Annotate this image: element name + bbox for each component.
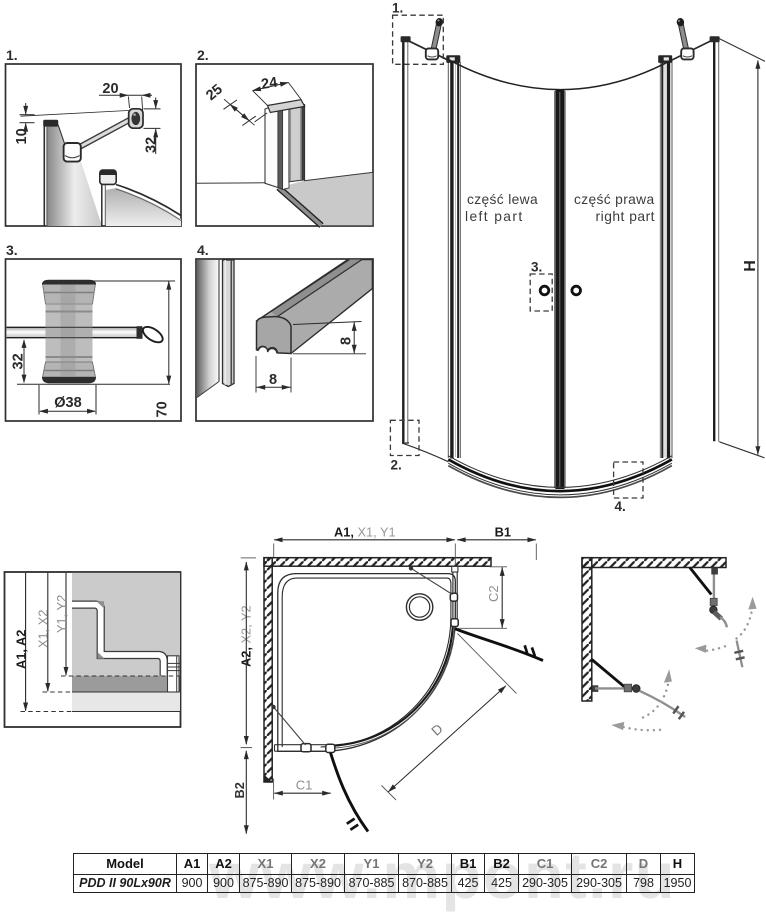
- svg-text:część prawa: część prawa: [574, 192, 655, 207]
- svg-text:24: 24: [260, 75, 278, 93]
- svg-text:32: 32: [144, 137, 160, 153]
- svg-text:1.: 1.: [392, 1, 403, 16]
- svg-text:left part: left part: [465, 209, 524, 224]
- svg-text:H: H: [742, 260, 759, 272]
- svg-text:1.: 1.: [6, 47, 18, 63]
- svg-text:8: 8: [339, 337, 355, 345]
- svg-text:4.: 4.: [615, 499, 626, 514]
- svg-text:Y1, Y2: Y1, Y2: [54, 595, 69, 633]
- svg-text:2.: 2.: [391, 458, 402, 473]
- svg-text:3.: 3.: [531, 260, 542, 275]
- svg-text:X1, X2: X1, X2: [36, 610, 51, 648]
- svg-text:A1, A2: A1, A2: [13, 630, 28, 669]
- svg-text:right part: right part: [596, 209, 655, 224]
- svg-text:B1: B1: [495, 525, 511, 540]
- svg-text:70: 70: [155, 401, 171, 417]
- svg-text:C2: C2: [486, 585, 501, 602]
- svg-text:20: 20: [102, 81, 118, 97]
- svg-text:C1: C1: [296, 778, 313, 793]
- svg-text:A1, X1, Y1: A1, X1, Y1: [334, 525, 396, 540]
- svg-text:4.: 4.: [197, 242, 209, 258]
- svg-text:10: 10: [14, 128, 30, 144]
- svg-text:Ø38: Ø38: [54, 395, 81, 411]
- svg-text:2.: 2.: [197, 47, 209, 63]
- svg-text:B2: B2: [232, 782, 247, 798]
- svg-text:3.: 3.: [6, 242, 18, 258]
- svg-text:8: 8: [269, 372, 277, 388]
- svg-text:D: D: [428, 721, 445, 739]
- svg-text:część lewa: część lewa: [467, 192, 538, 207]
